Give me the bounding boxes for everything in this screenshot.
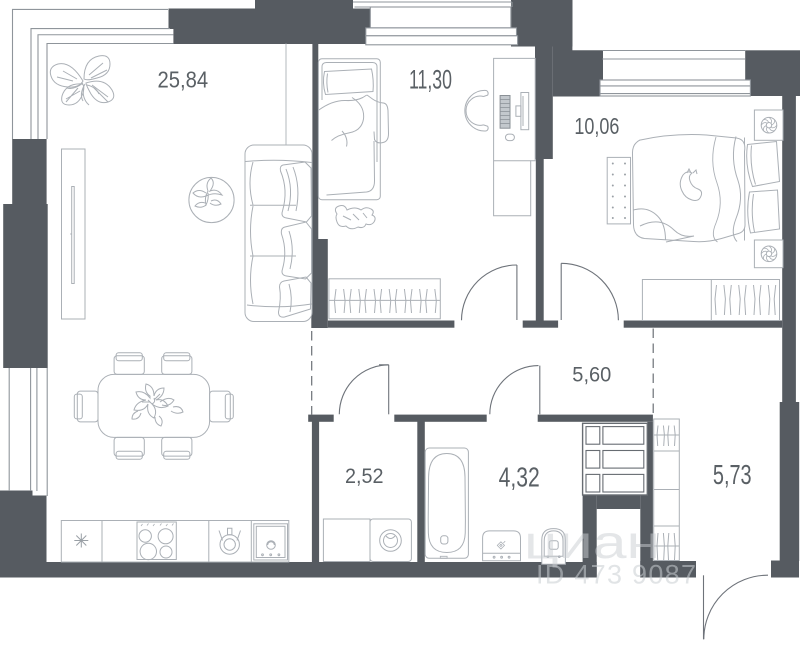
svg-text:5,60: 5,60 <box>572 362 611 386</box>
svg-text:10,06: 10,06 <box>574 113 619 139</box>
svg-text:ID 473 9087: ID 473 9087 <box>536 560 696 590</box>
svg-text:25,84: 25,84 <box>158 67 209 93</box>
svg-text:11,30: 11,30 <box>409 65 452 95</box>
svg-text:4,32: 4,32 <box>499 461 540 492</box>
svg-text:2,52: 2,52 <box>345 464 384 488</box>
svg-text:5,73: 5,73 <box>713 459 752 490</box>
